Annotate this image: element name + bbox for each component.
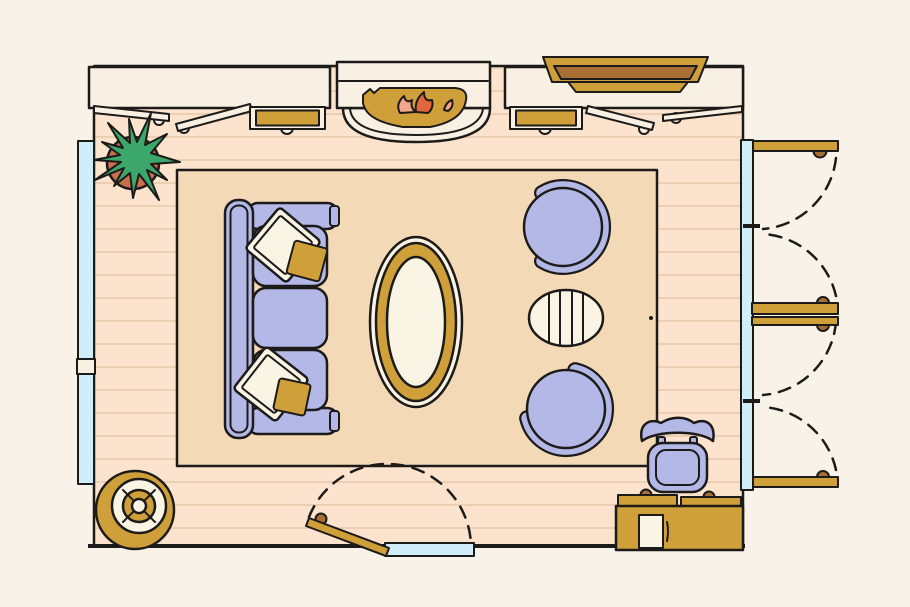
tv-screen [554, 66, 697, 79]
top-left-ledge [89, 67, 330, 108]
door-panel-bottom [753, 477, 838, 487]
desk-chair [641, 418, 713, 492]
side-cabinet-left [250, 107, 325, 134]
door-panel-middle-b [752, 317, 838, 325]
side-cabinet-right [510, 107, 582, 134]
desk-shelf-left [618, 495, 677, 506]
door-panel-top [753, 141, 838, 151]
left-wall-windows [77, 141, 95, 484]
floor-dot [649, 316, 653, 320]
accent-pillow-top [286, 240, 328, 282]
door-panel-middle-a [752, 303, 838, 314]
window-upper [78, 141, 94, 359]
sofa [225, 200, 339, 438]
accent-chair-top [524, 187, 603, 267]
glass-wall [741, 140, 753, 490]
tv-base [568, 82, 688, 92]
door-threshold [385, 543, 474, 556]
fireplace [337, 62, 490, 142]
desk-top [616, 506, 743, 550]
window-mullion [77, 359, 95, 374]
floor-plan-illustration [0, 0, 910, 607]
accent-pillow-bottom [273, 378, 311, 416]
sofa-cushion [253, 288, 327, 348]
oval-coffee-table [370, 237, 462, 407]
floor-plan-canvas [0, 0, 910, 607]
paper-sheet [639, 515, 663, 548]
round-floor-lamp [96, 471, 174, 549]
striped-ottoman [529, 290, 603, 346]
pen [667, 522, 668, 541]
window-lower [78, 374, 94, 484]
